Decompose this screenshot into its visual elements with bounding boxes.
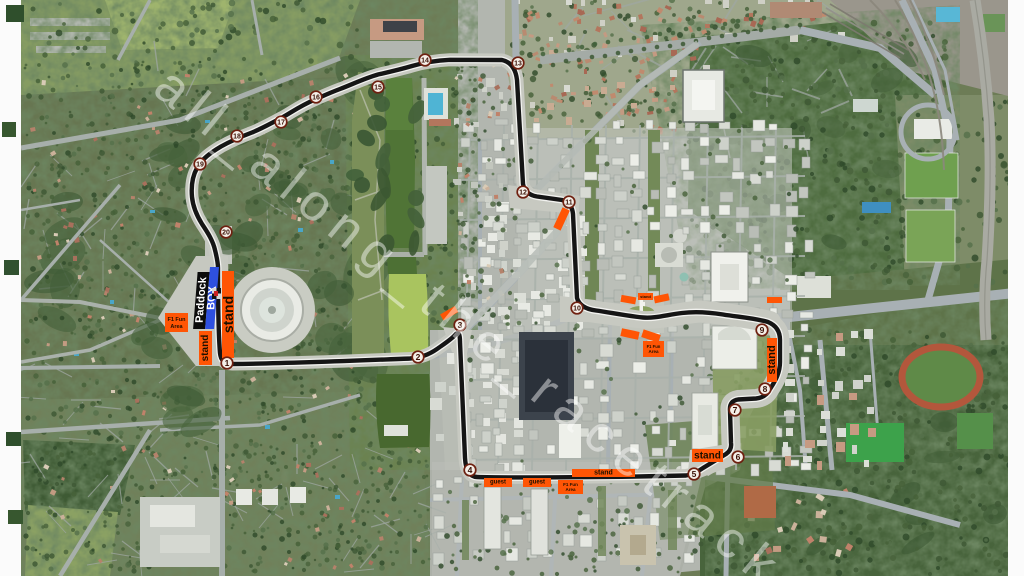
svg-text:11: 11 [565, 200, 573, 207]
svg-text:14: 14 [421, 58, 429, 65]
svg-text:17: 17 [277, 120, 285, 127]
svg-text:20: 20 [222, 230, 230, 237]
svg-text:Area: Area [170, 324, 183, 330]
svg-text:stand: stand [766, 345, 778, 374]
svg-text:F1 Fun: F1 Fun [167, 317, 186, 323]
svg-text:1: 1 [225, 358, 230, 368]
svg-text:9: 9 [760, 325, 765, 335]
svg-text:7: 7 [733, 405, 738, 415]
svg-text:Area: Area [648, 349, 659, 354]
svg-text:10: 10 [573, 306, 581, 313]
svg-text:6: 6 [736, 452, 741, 462]
svg-text:16: 16 [312, 95, 320, 102]
svg-text:stand: stand [640, 294, 651, 299]
svg-text:guest: guest [490, 480, 506, 486]
svg-text:8: 8 [763, 384, 768, 394]
svg-text:stand: stand [694, 451, 721, 462]
svg-text:15: 15 [374, 85, 382, 92]
svg-text:19: 19 [196, 162, 204, 169]
svg-text:Area: Area [565, 487, 576, 492]
svg-text:13: 13 [514, 61, 522, 68]
svg-text:4: 4 [468, 465, 473, 475]
svg-text:2: 2 [416, 352, 421, 362]
svg-text:stand: stand [220, 296, 236, 333]
svg-text:guest: guest [529, 480, 545, 486]
svg-text:12: 12 [519, 190, 527, 197]
svg-text:stand: stand [200, 335, 211, 362]
